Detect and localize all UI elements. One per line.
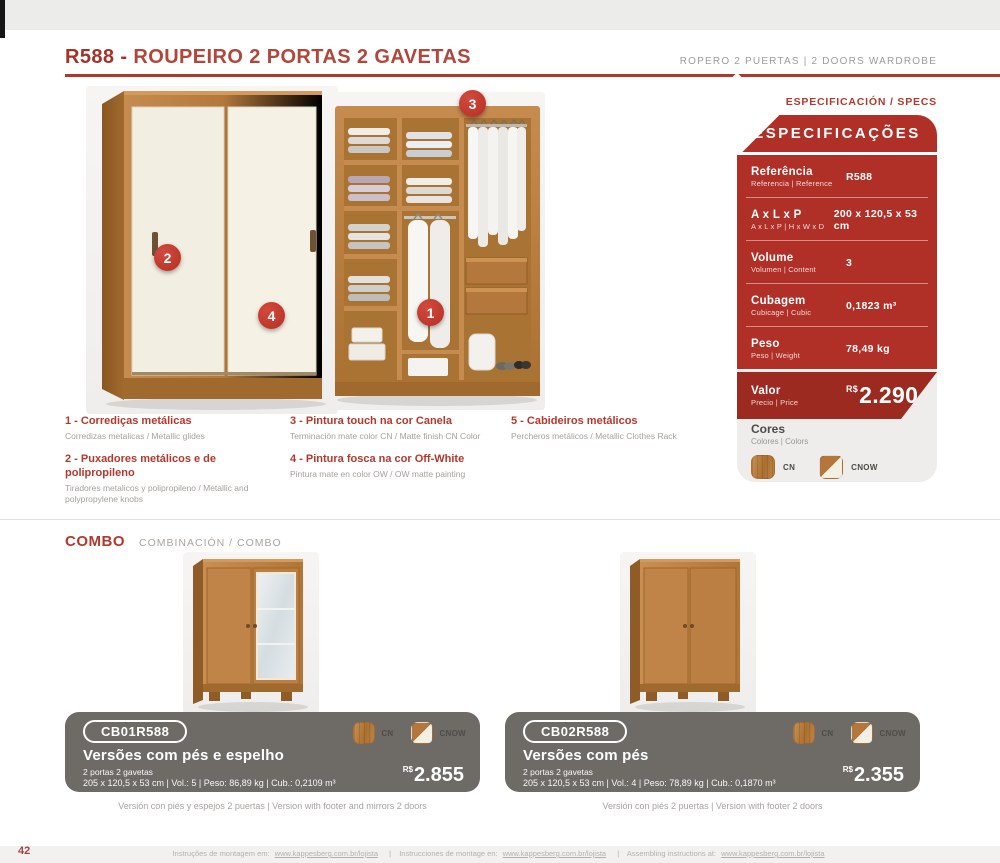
page-top-edge — [0, 0, 1000, 30]
combo-code-badge: CB02R588 — [523, 720, 627, 743]
color-swatch-cnow — [819, 455, 843, 479]
combo-price: R$2.855 — [403, 764, 464, 787]
spec-name: Referência — [751, 166, 846, 178]
combo-description: 2 portas 2 gavetas — [523, 767, 593, 777]
spec-value: 200 x 120,5 x 53 cm — [834, 208, 923, 232]
combo-dimensions: 205 x 120,5 x 53 cm | Vol.: 4 | Peso: 78… — [523, 778, 776, 788]
combo-title: COMBO — [65, 533, 125, 550]
feature-subtitle: Corredizas metalicas / Metallic glides — [65, 431, 277, 443]
color-label-cn: CN — [821, 729, 833, 738]
color-swatch-cn — [793, 722, 815, 744]
callout-number: 4 — [268, 308, 276, 324]
spec-sub: Volumen | Content — [751, 265, 846, 274]
colors-title: Cores — [751, 422, 923, 436]
color-label-cnow: CNOW — [851, 463, 878, 472]
feature-title: 4 - Pintura fosca na cor Off-White — [290, 453, 502, 467]
color-label-cn: CN — [381, 729, 393, 738]
color-label-cnow: CNOW — [879, 729, 906, 738]
combo-card-cb01r588: CB01R588 Versões com pés e espelho 2 por… — [65, 712, 480, 792]
footer-link-en[interactable]: www.kappesberg.com.br/lojista — [721, 849, 824, 858]
closed-wardrobe-photo — [86, 86, 338, 414]
spec-row-cubage: Cubagem Cubicage | Cubic 0,1823 m³ — [746, 284, 928, 327]
currency-symbol: R$ — [403, 765, 413, 774]
feature-3: 3 - Pintura touch na cor Canela Terminac… — [290, 415, 502, 443]
price-value: 2.355 — [854, 764, 904, 786]
feature-title: 3 - Pintura touch na cor Canela — [290, 415, 502, 429]
specs-title: ESPECIFICAÇÕES — [753, 125, 921, 142]
open-wardrobe-photo — [330, 92, 545, 410]
spec-name: Cubagem — [751, 295, 846, 307]
feature-4: 4 - Pintura fosca na cor Off-White Pintu… — [290, 453, 502, 481]
combo-heading: COMBO COMBINACIÓN / COMBO — [65, 533, 282, 550]
spec-row-dimensions: A x L x P A x L x P | H x W x D 200 x 12… — [746, 198, 928, 241]
currency-symbol: R$ — [843, 765, 853, 774]
spec-sub: Peso | Weight — [751, 351, 846, 360]
header-rule — [65, 74, 1000, 77]
spec-value: 78,49 kg — [846, 343, 890, 355]
footer-separator: | — [617, 849, 619, 858]
footer-link-es[interactable]: www.kappesberg.com.br/lojista — [503, 849, 606, 858]
combo2-caption: Versión con piés 2 puertas | Version wit… — [505, 801, 920, 811]
combo1-caption: Versión con piés y espejos 2 puertas | V… — [65, 801, 480, 811]
section-divider — [0, 519, 1000, 520]
callout-badge-4: 4 — [258, 302, 285, 329]
specs-header: ESPECIFICAÇÕES — [737, 115, 937, 152]
spec-row-volume: Volume Volumen | Content 3 — [746, 241, 928, 284]
spec-name: Volume — [751, 252, 846, 264]
feature-2: 2 - Puxadores metálicos e de polipropile… — [65, 453, 277, 506]
combo-color-options: CN CNOW — [353, 722, 466, 744]
catalog-page: R588 - ROUPEIRO 2 PORTAS 2 GAVETAS ROPER… — [0, 0, 1000, 863]
spec-value: 3 — [846, 257, 852, 269]
color-swatch-cnow — [851, 722, 873, 744]
binding-mark — [0, 0, 5, 38]
combo1-photo — [183, 552, 319, 714]
spec-row-reference: Referência Referencia | Reference R588 — [746, 155, 928, 198]
callout-badge-1: 1 — [417, 299, 444, 326]
combo-description: 2 portas 2 gavetas — [83, 767, 153, 777]
feature-subtitle: Pintura mate en color OW / OW matte pain… — [290, 469, 502, 481]
feature-title: 5 - Cabideiros metálicos — [511, 415, 723, 429]
feature-subtitle: Tiradores metalicos y polipropileno / Me… — [65, 483, 277, 507]
feature-5: 5 - Cabideiros metálicos Percheros metál… — [511, 415, 723, 443]
spec-sub: Referencia | Reference — [751, 179, 846, 188]
combo-card-cb02r588: CB02R588 Versões com pés 2 portas 2 gave… — [505, 712, 920, 792]
footer-separator: | — [389, 849, 391, 858]
spec-name: Peso — [751, 338, 846, 350]
footer-link-pt[interactable]: www.kappesberg.com.br/lojista — [275, 849, 378, 858]
callout-number: 2 — [164, 250, 172, 266]
combo-version-title: Versões com pés — [523, 747, 649, 764]
footer-instructions: Instruções de montagem em: www.kappesber… — [0, 849, 1000, 858]
combo-dimensions: 205 x 120,5 x 53 cm | Vol.: 5 | Peso: 86… — [83, 778, 336, 788]
combo2-photo — [620, 552, 756, 714]
combo1-wardrobe-image — [183, 552, 319, 714]
product-code: R588 - — [65, 46, 127, 68]
combo-color-options: CN CNOW — [793, 722, 906, 744]
combo2-wardrobe-image — [620, 552, 756, 714]
spec-value: R588 — [846, 171, 872, 183]
feature-subtitle: Terminación mate color CN / Matte finish… — [290, 431, 502, 443]
closed-wardrobe-image — [86, 86, 338, 414]
callout-badge-3: 3 — [459, 90, 486, 117]
colors-section: Cores Colores | Colors CN CNOW — [737, 370, 937, 482]
combo-subtitle: COMBINACIÓN / COMBO — [139, 537, 282, 549]
feature-subtitle: Percheros metálicos / Metallic Clothes R… — [511, 431, 723, 443]
color-swatch-cn — [353, 722, 375, 744]
footer-label-pt: Instruções de montagem em: — [172, 849, 269, 858]
combo-code-badge: CB01R588 — [83, 720, 187, 743]
product-name: ROUPEIRO 2 PORTAS 2 GAVETAS — [133, 46, 471, 68]
feature-title: 1 - Corrediças metálicas — [65, 415, 277, 429]
feature-title: 2 - Puxadores metálicos e de polipropile… — [65, 453, 277, 481]
color-label-cnow: CNOW — [439, 729, 466, 738]
spec-sub: Cubicage | Cubic — [751, 308, 846, 317]
spec-sub: A x L x P | H x W x D — [751, 222, 834, 231]
footer-label-en: Assembling instructions at: — [627, 849, 716, 858]
spec-name: A x L x P — [751, 209, 834, 221]
color-label-cn: CN — [783, 463, 795, 472]
callout-number: 1 — [427, 305, 435, 321]
open-wardrobe-image — [330, 92, 545, 410]
price-value: 2.855 — [414, 764, 464, 786]
specs-rows: Referência Referencia | Reference R588 A… — [737, 155, 937, 369]
spec-row-weight: Peso Peso | Weight 78,49 kg — [746, 327, 928, 369]
footer-label-es: Instrucciones de montage en: — [399, 849, 497, 858]
callout-badge-2: 2 — [154, 244, 181, 271]
page-title: R588 - ROUPEIRO 2 PORTAS 2 GAVETAS — [65, 46, 471, 69]
color-swatch-cnow — [411, 722, 433, 744]
specs-label: ESPECIFICACIÓN / SPECS — [786, 96, 937, 108]
specs-panel: ESPECIFICAÇÕES Referência Referencia | R… — [737, 115, 937, 482]
color-swatch-cn — [751, 455, 775, 479]
combo-version-title: Versões com pés e espelho — [83, 747, 284, 764]
callout-number: 3 — [469, 96, 477, 112]
page-subtitle: ROPERO 2 PUERTAS | 2 DOORS WARDROBE — [680, 56, 937, 67]
feature-1: 1 - Corrediças metálicas Corredizas meta… — [65, 415, 277, 443]
spec-value: 0,1823 m³ — [846, 300, 897, 312]
combo-price: R$2.355 — [843, 764, 904, 787]
specs-header-corner-cut — [695, 73, 780, 158]
colors-subtitle: Colores | Colors — [751, 437, 923, 446]
